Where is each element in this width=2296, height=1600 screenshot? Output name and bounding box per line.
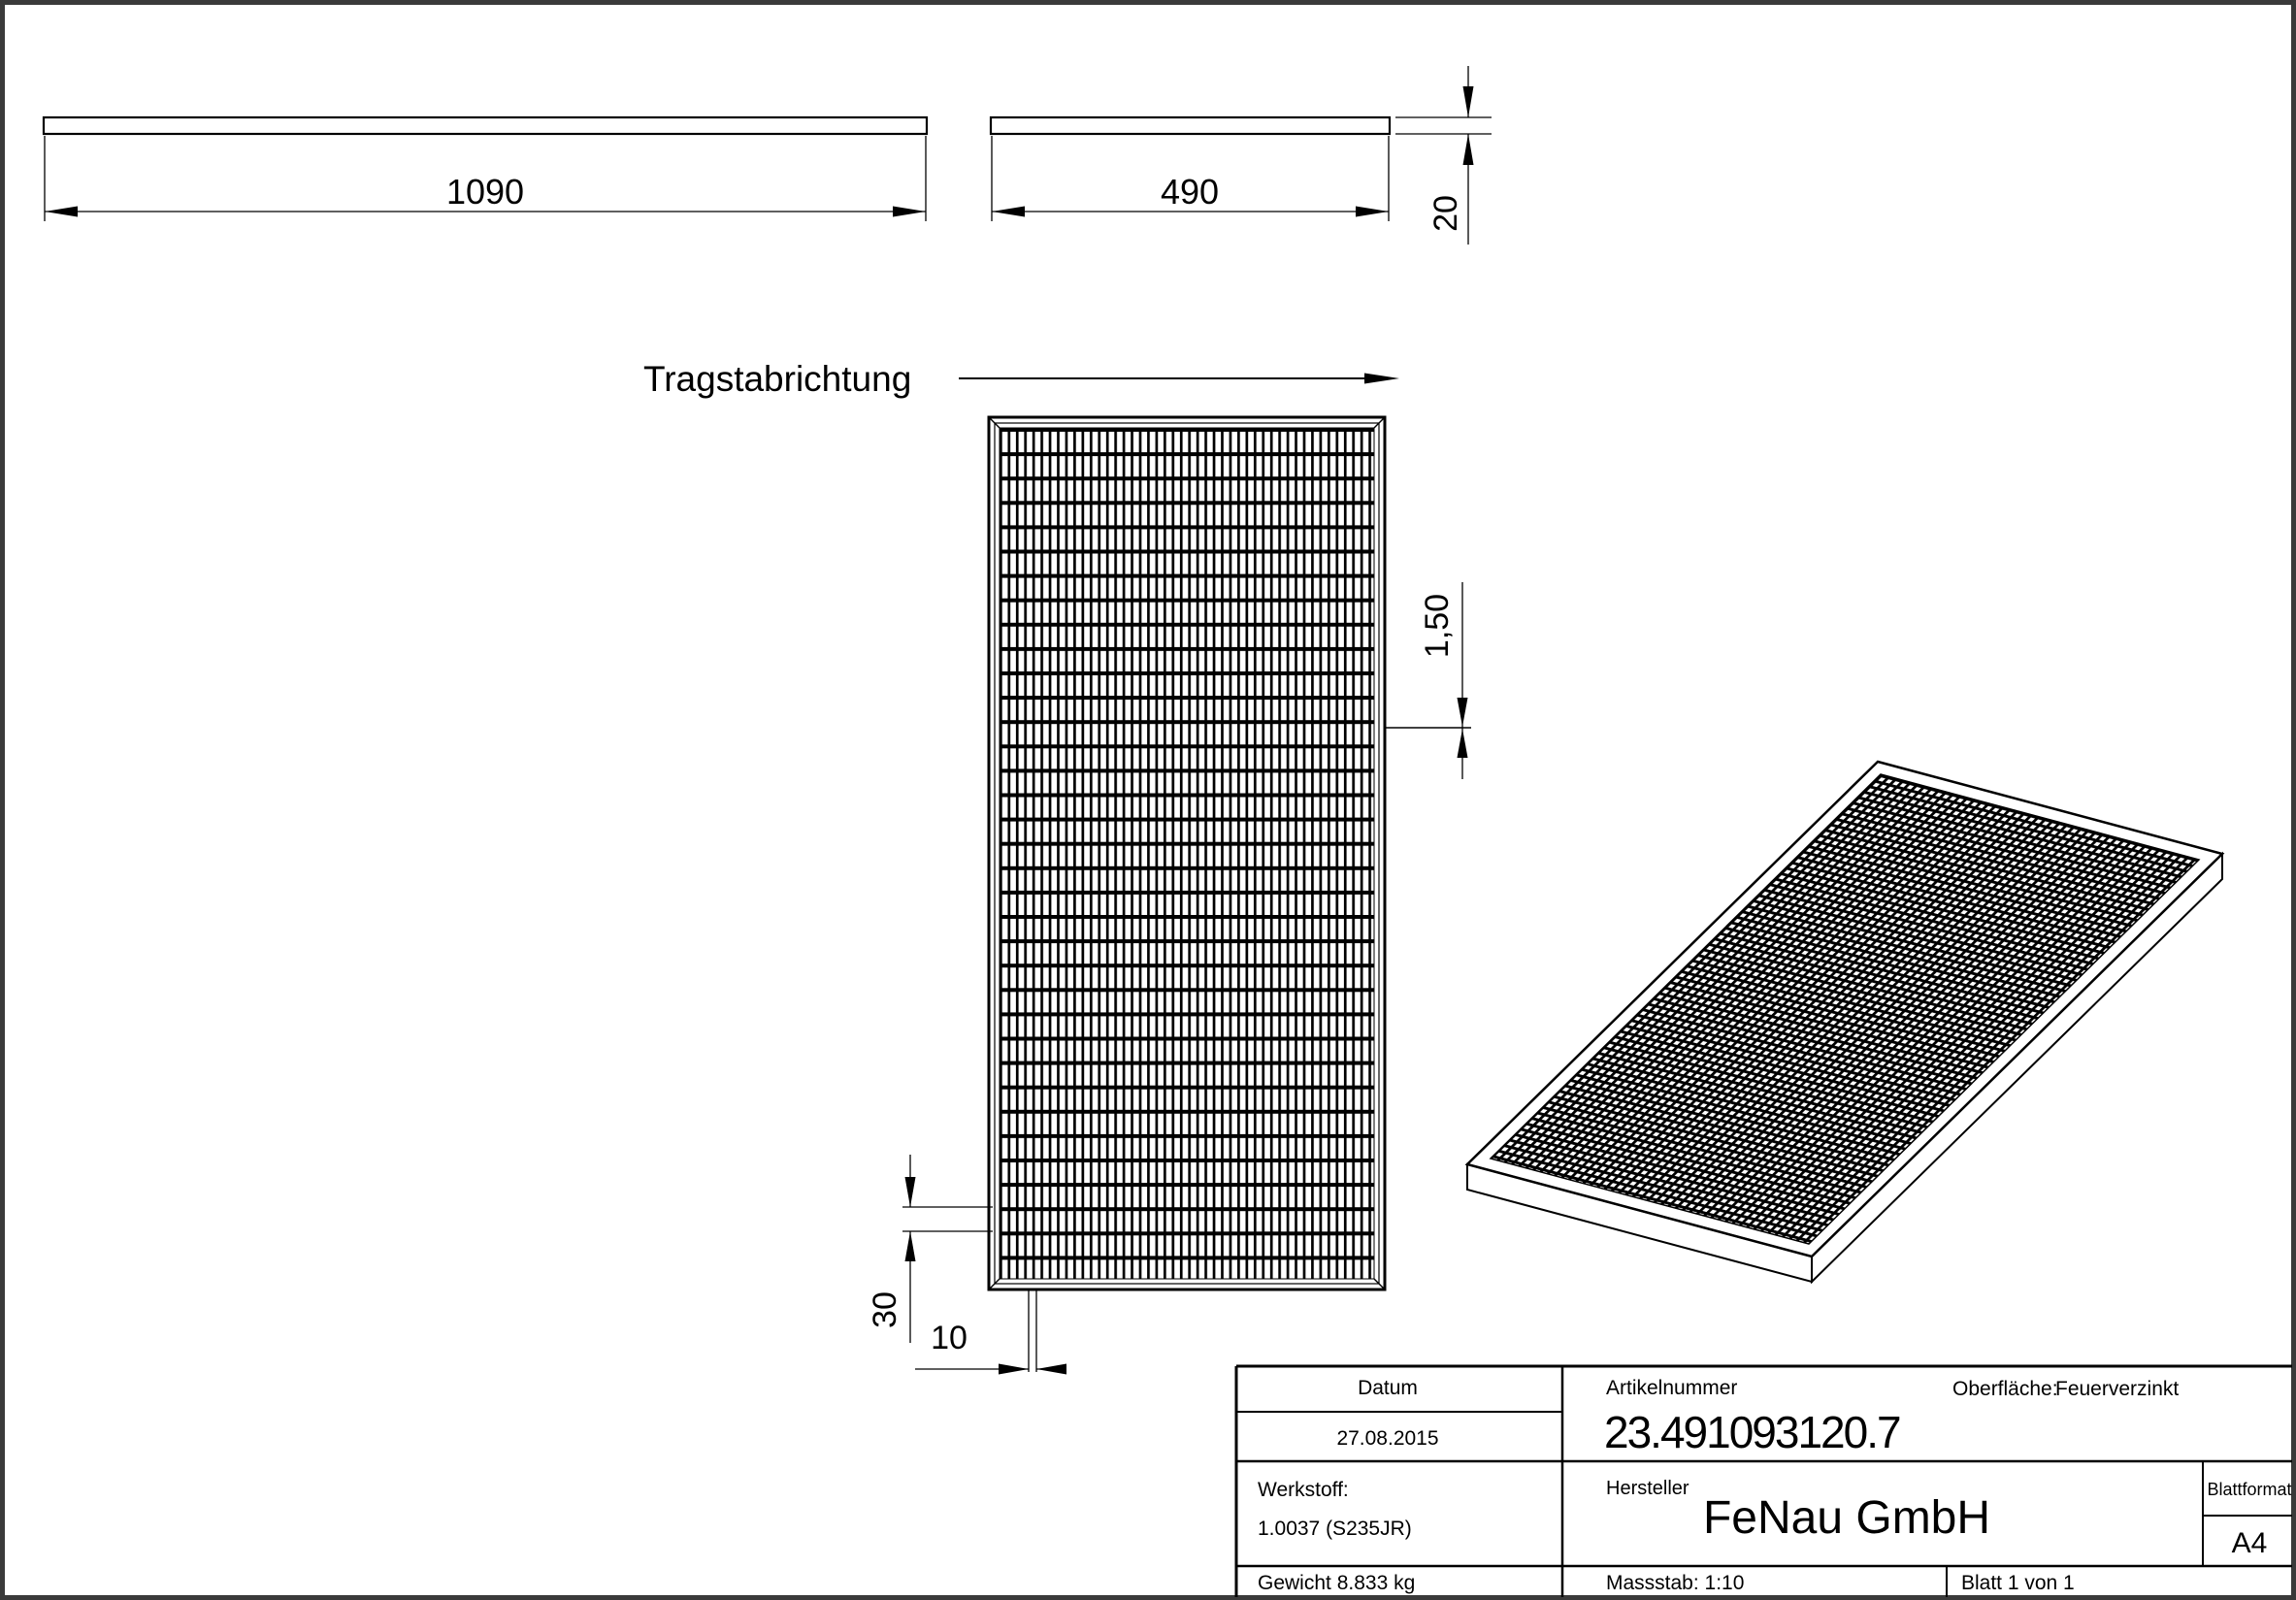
front-view-grating (989, 417, 1385, 1290)
hersteller-label: Hersteller (1606, 1478, 1689, 1499)
dim-pitch-cross-text: 10 (931, 1320, 968, 1356)
artikelnummer-label: Artikelnummer (1606, 1377, 1737, 1399)
dim-width-text: 490 (1161, 172, 1219, 212)
artikelnummer-value: 23.491093120.7 (1604, 1407, 1900, 1457)
direction-label: Tragstabrichtung (643, 359, 911, 399)
dim-thickness-text: 20 (1427, 195, 1464, 232)
datum-value: 27.08.2015 (1336, 1427, 1438, 1450)
massstab-text: Massstab: 1:10 (1606, 1572, 1744, 1594)
werkstoff-label: Werkstoff: (1258, 1479, 1349, 1501)
dim-crossbar-text: 1,50 (1419, 594, 1456, 658)
hersteller-value: FeNau GmbH (1703, 1492, 1990, 1544)
dim-pitch-long-text: 30 (867, 1291, 903, 1328)
drawing-page: 1090 490 20 Tragstabrichtung (0, 0, 2296, 1600)
gewicht-text: Gewicht 8.833 kg (1258, 1572, 1415, 1594)
technical-drawing-canvas: 1090 490 20 Tragstabrichtung (0, 0, 2296, 1600)
grating-mesh (1000, 428, 1374, 1279)
blattformat-value: A4 (2232, 1527, 2268, 1559)
oberflaeche-label: Oberfläche: (1952, 1378, 2058, 1400)
datum-label: Datum (1358, 1377, 1418, 1399)
oberflaeche-value: Feuerverzinkt (2055, 1378, 2179, 1400)
blatt-text: Blatt 1 von 1 (1961, 1572, 2075, 1594)
blattformat-label: Blattformat (2207, 1480, 2291, 1499)
werkstoff-value: 1.0037 (S235JR) (1258, 1518, 1412, 1540)
dim-length-text: 1090 (446, 172, 524, 212)
